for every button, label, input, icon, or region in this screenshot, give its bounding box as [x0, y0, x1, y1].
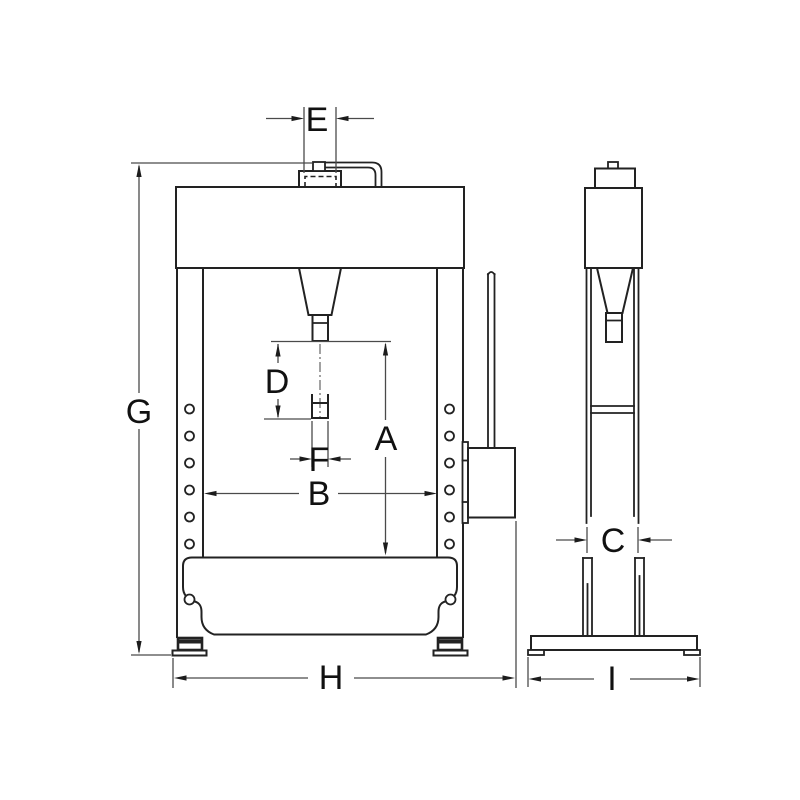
side-base-pad-left: [528, 650, 544, 655]
dim-B: B: [204, 475, 437, 513]
press-technical-drawing: E G D A: [0, 0, 800, 800]
handle-socket: [299, 162, 382, 187]
right-foot: [434, 638, 468, 656]
bed-pin-left: [185, 595, 195, 605]
work-bed: [183, 558, 457, 635]
side-bed-posts: [583, 558, 644, 636]
side-ram-nose: [606, 313, 622, 342]
dim-C: C: [556, 522, 672, 560]
dim-label-a: A: [375, 420, 398, 458]
side-view: [528, 162, 700, 655]
cylinder-ram: [299, 268, 341, 341]
socket-nub: [313, 162, 325, 171]
pump-handle-rod: [488, 272, 495, 448]
dim-label-d: D: [265, 363, 290, 401]
side-crossbrace: [591, 406, 634, 413]
front-view: [173, 162, 516, 656]
dim-label-h: H: [319, 659, 344, 697]
side-cylinder-cone: [597, 268, 633, 313]
dim-label-i: I: [607, 660, 616, 698]
dim-A: A: [375, 343, 398, 556]
crosshead: [176, 187, 464, 268]
side-base: [528, 636, 700, 655]
dim-I: I: [528, 657, 700, 698]
dim-label-g: G: [126, 393, 152, 431]
pump-box: [468, 448, 515, 518]
dim-label-f: F: [309, 441, 330, 479]
side-socket-cap: [595, 169, 635, 189]
dim-label-b: B: [308, 475, 331, 513]
left-foot: [173, 638, 207, 656]
dim-F: F: [290, 421, 351, 479]
side-crosshead: [585, 188, 642, 268]
dim-label-e: E: [306, 101, 329, 139]
pump-unit: [463, 272, 516, 523]
drawing-page: E G D A: [0, 0, 800, 800]
ram-nose: [313, 315, 329, 341]
cylinder-cone: [299, 268, 341, 315]
bed-pin-right: [446, 595, 456, 605]
dim-label-c: C: [601, 522, 626, 560]
side-cylinder-ram: [597, 268, 633, 342]
dim-D: D: [265, 344, 290, 419]
side-base-pad-right: [684, 650, 700, 655]
